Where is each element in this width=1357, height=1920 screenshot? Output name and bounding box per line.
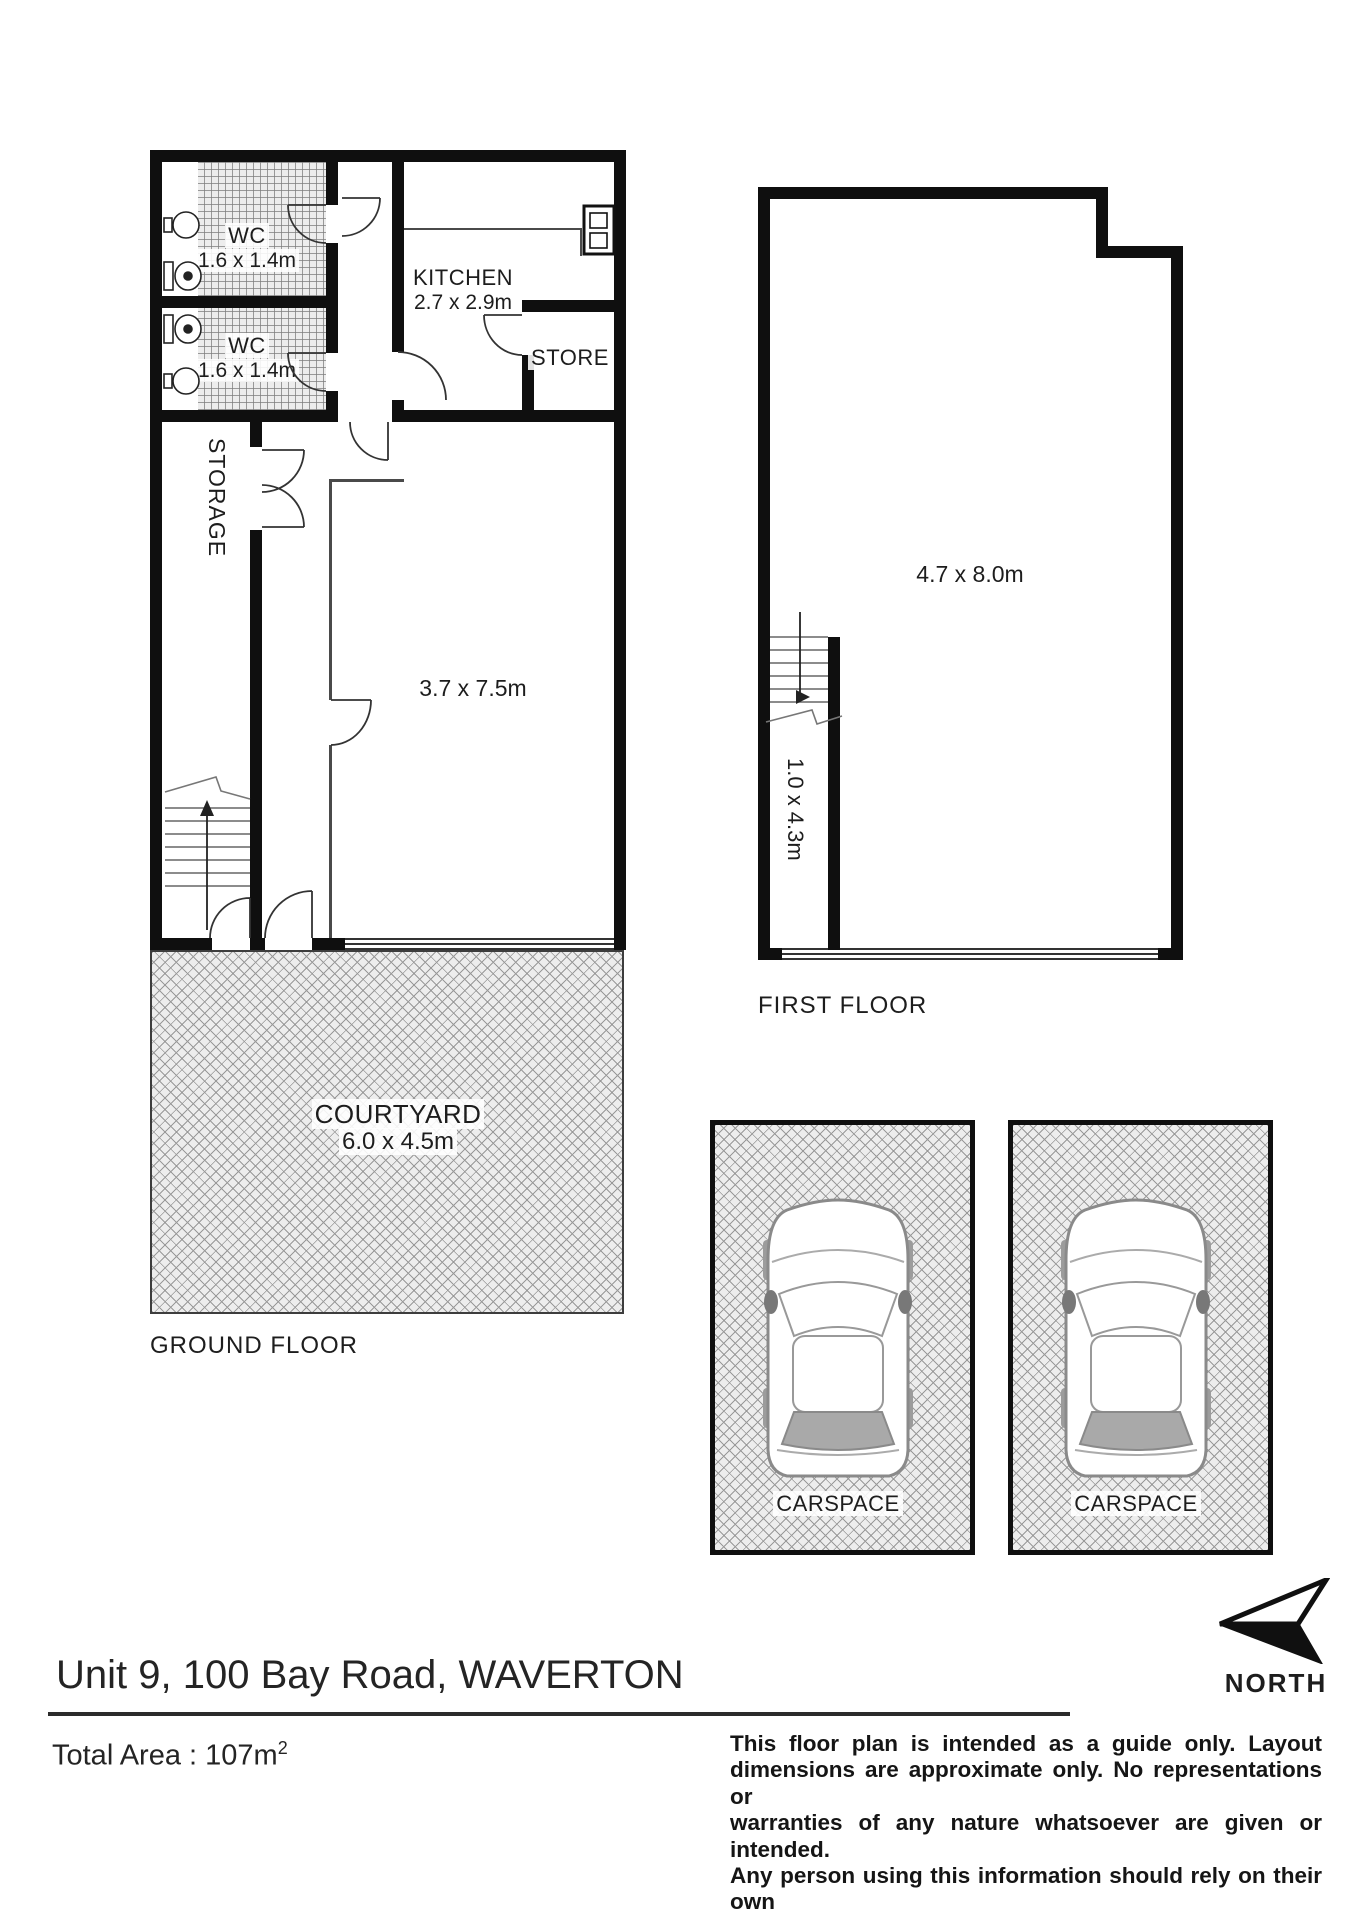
kitchen-counter: [404, 228, 582, 230]
glass-partition: [329, 480, 332, 700]
room-name: COURTYARD: [312, 1099, 485, 1129]
room-dims: 6.0 x 4.5m: [339, 1128, 457, 1155]
room-name: WC: [225, 223, 269, 248]
disclaimer: This floor plan is intended as a guide o…: [730, 1731, 1322, 1920]
storage-label: STORAGE: [203, 430, 230, 565]
wc2-label: WC 1.6 x 1.4m: [172, 334, 322, 382]
ground-floor-title: GROUND FLOOR: [150, 1332, 358, 1360]
room-name: WC: [225, 333, 269, 358]
window: [345, 938, 614, 950]
carspace-text: CARSPACE: [1071, 1491, 1200, 1516]
total-area-exponent: 2: [278, 1738, 288, 1758]
wall: [162, 938, 212, 950]
courtyard-label: COURTYARD 6.0 x 4.5m: [298, 1100, 498, 1156]
wall: [758, 187, 770, 960]
room-dims: 1.6 x 1.4m: [195, 359, 299, 382]
disclaimer-line: dimensions are approximate only. No repr…: [730, 1757, 1322, 1810]
first-floor-title: FIRST FLOOR: [758, 992, 927, 1020]
north-label: NORTH: [1216, 1668, 1336, 1699]
glass-partition: [329, 745, 332, 938]
disclaimer-line: enquiries. Floor Plans by SURROUNDPIX.: [730, 1916, 1322, 1920]
total-area-label: Total Area :: [52, 1740, 197, 1772]
wall: [162, 410, 338, 422]
carspace-2-label: CARSPACE: [1061, 1492, 1211, 1517]
car-icon: [763, 1198, 913, 1478]
property-address: Unit 9, 100 Bay Road, WAVERTON: [56, 1653, 684, 1698]
wall: [162, 296, 326, 308]
wall: [392, 162, 404, 352]
wall: [312, 938, 345, 950]
ff-stairs-label: 1.0 x 4.3m: [782, 742, 808, 877]
wall: [758, 948, 782, 960]
wall: [326, 162, 338, 205]
divider: [48, 1712, 1070, 1716]
north-arrow-icon: [1218, 1578, 1330, 1664]
wall: [1158, 948, 1183, 960]
wall: [758, 187, 1108, 199]
wall: [392, 410, 614, 422]
carspace-text: CARSPACE: [773, 1491, 902, 1516]
kitchen-counter: [580, 228, 582, 256]
glass-partition: [329, 479, 404, 482]
main-room-label: 3.7 x 7.5m: [393, 676, 553, 702]
wall: [1171, 246, 1183, 960]
disclaimer-line: This floor plan is intended as a guide o…: [730, 1731, 1322, 1757]
carspace-1-label: CARSPACE: [763, 1492, 913, 1517]
room-dims: 3.7 x 7.5m: [416, 675, 529, 701]
disclaimer-line: Any person using this information should…: [730, 1863, 1322, 1916]
wall: [250, 422, 262, 447]
wall: [250, 938, 265, 950]
ff-main-room-label: 4.7 x 8.0m: [880, 562, 1060, 588]
stair-wall: [828, 637, 840, 950]
kitchen-label: KITCHEN 2.7 x 2.9m: [388, 266, 538, 314]
store-label: STORE: [520, 346, 620, 371]
wall: [250, 530, 262, 938]
room-dims: 2.7 x 2.9m: [411, 291, 515, 314]
room-dims: 1.6 x 1.4m: [195, 249, 299, 272]
total-area: Total Area : 107m2: [52, 1738, 288, 1773]
wall: [1096, 246, 1183, 258]
room-name: KITCHEN: [410, 265, 516, 290]
room-name: STORE: [528, 345, 612, 370]
room-dims: 4.7 x 8.0m: [913, 561, 1026, 587]
floorplan-page: WC 1.6 x 1.4m WC 1.6 x 1.4m KITCHEN 2.7 …: [0, 0, 1357, 1920]
car-icon: [1061, 1198, 1211, 1478]
disclaimer-line: warranties of any nature whatsoever are …: [730, 1810, 1322, 1863]
wall: [326, 243, 338, 353]
wc1-label: WC 1.6 x 1.4m: [172, 224, 322, 272]
total-area-value: 107m: [205, 1740, 278, 1772]
